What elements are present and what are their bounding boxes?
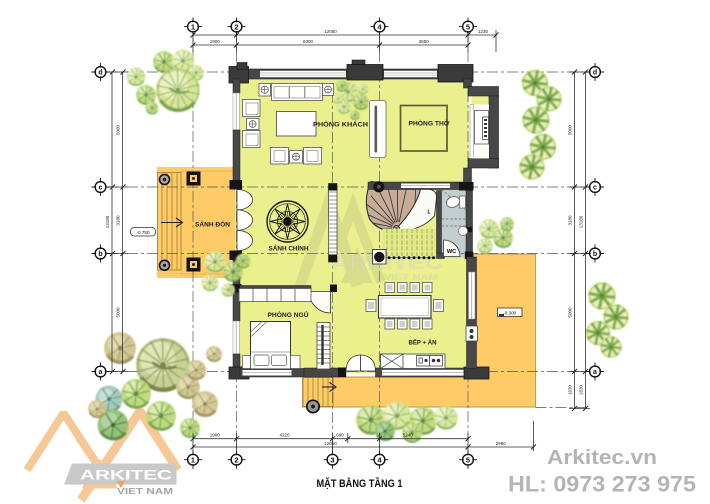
svg-text:12050: 12050 [324,29,337,34]
svg-text:a: a [99,369,103,376]
svg-text:2: 2 [234,22,238,31]
svg-text:690: 690 [336,433,344,438]
svg-text:a: a [593,369,597,376]
svg-text:HL: 0973 273 975: HL: 0973 273 975 [508,472,696,497]
svg-text:1630: 1630 [579,384,584,395]
svg-text:1630: 1630 [568,384,573,395]
svg-text:b: b [98,251,102,258]
svg-text:SẢNH ĐÓN: SẢNH ĐÓN [195,221,230,229]
svg-text:2: 2 [234,455,238,464]
svg-text:Arkitec.vn: Arkitec.vn [547,447,657,469]
svg-text:3180: 3180 [116,215,121,226]
svg-text:c: c [593,185,597,192]
svg-text:5000: 5000 [568,307,573,318]
svg-text:c: c [99,185,103,192]
svg-text:1900: 1900 [210,39,221,44]
svg-text:1: 1 [191,22,195,31]
svg-text:3180: 3180 [568,215,573,226]
svg-text:VIET NAM: VIET NAM [117,487,173,496]
svg-text:PHÒNG KHÁCH: PHÒNG KHÁCH [313,120,368,129]
svg-text:5000: 5000 [116,124,121,135]
svg-text:MẶT BẰNG TẦNG 1: MẶT BẰNG TẦNG 1 [317,477,403,490]
svg-text:SẢNH CHÍNH: SẢNH CHÍNH [269,245,309,253]
svg-text:PHÒNG THỜ: PHÒNG THỜ [409,119,450,128]
svg-text:13180: 13180 [105,215,110,228]
svg-text:6300: 6300 [303,39,314,44]
svg-text:5240: 5240 [403,433,414,438]
svg-text:13180: 13180 [579,215,584,228]
svg-text:12050: 12050 [324,441,337,446]
svg-text:5000: 5000 [116,307,121,318]
svg-text:5: 5 [466,455,470,464]
svg-text:-0.750: -0.750 [136,230,149,235]
svg-text:1: 1 [191,455,195,464]
svg-text:WC: WC [447,249,456,255]
svg-text:d: d [593,70,597,77]
svg-text:3: 3 [330,455,334,464]
svg-text:L: L [428,210,431,216]
svg-text:ARKITEC: ARKITEC [80,468,172,483]
svg-text:1900: 1900 [210,433,221,438]
svg-text:b: b [593,251,597,258]
svg-text:d: d [98,70,102,77]
svg-text:5000: 5000 [568,124,573,135]
svg-text:BẾP + ĂN: BẾP + ĂN [409,340,437,347]
svg-text:3650: 3650 [419,39,430,44]
svg-text:2990: 2990 [496,441,507,446]
svg-text:5: 5 [466,22,470,31]
svg-text:VIET NAM: VIET NAM [384,273,438,282]
svg-text:4220: 4220 [279,433,290,438]
svg-text:PHÒNG NGỦ: PHÒNG NGỦ [268,310,309,319]
svg-text:-0.300: -0.300 [503,310,516,315]
svg-text:1230: 1230 [478,29,489,34]
